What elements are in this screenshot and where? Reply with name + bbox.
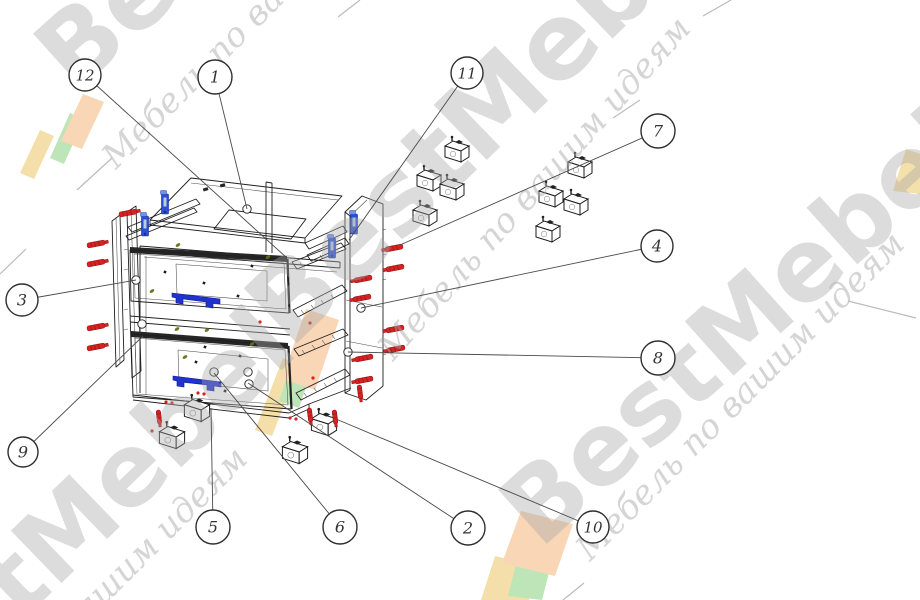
watermark-dash-line xyxy=(703,0,731,16)
assembly-diagram-page: BestMebelBestMebelBestMebelBestMebelМебе… xyxy=(0,0,920,600)
callout-number: 8 xyxy=(653,349,663,368)
screw-red xyxy=(87,342,109,351)
dowel-mark xyxy=(174,326,180,331)
callout-number: 12 xyxy=(75,67,94,85)
callout-number: 4 xyxy=(651,237,662,256)
screw-mark xyxy=(202,281,205,284)
callout-number: 10 xyxy=(583,519,603,537)
callout-number: 6 xyxy=(335,518,345,537)
watermark-dash-line xyxy=(77,158,112,190)
cam-lock-cube xyxy=(564,189,588,215)
watermark-dash-line xyxy=(338,0,360,17)
callout-number: 1 xyxy=(210,68,220,87)
callout-number: 5 xyxy=(208,518,218,537)
watermark-dash-line xyxy=(848,301,916,318)
screw-dot xyxy=(311,376,314,379)
screw-dot xyxy=(288,416,291,419)
screw-mark xyxy=(163,270,166,273)
watermark-layer: BestMebelBestMebelBestMebelBestMebelМебе… xyxy=(0,0,920,600)
callout-3: 3 xyxy=(6,280,136,316)
screw-red xyxy=(351,354,373,363)
screw-red xyxy=(87,322,109,331)
screw-red-vertical xyxy=(357,385,363,402)
callout-number: 9 xyxy=(18,443,28,462)
hinge-bracket-blue xyxy=(161,191,169,215)
dowel-mark xyxy=(175,242,181,247)
callout-number: 3 xyxy=(17,291,27,310)
watermark-dash-line xyxy=(0,249,26,274)
callout-number: 7 xyxy=(653,122,664,141)
leader-line-1 xyxy=(215,77,247,209)
logo-ribbon-yellow xyxy=(20,130,54,179)
callout-2: 2 xyxy=(248,383,485,545)
callout-number: 2 xyxy=(462,519,473,538)
foot-bracket-cube xyxy=(282,436,307,464)
pilot-hole xyxy=(138,320,146,328)
screw-red xyxy=(87,239,109,248)
dowel-mark xyxy=(149,288,155,293)
screw-red xyxy=(87,258,109,267)
watermark-dash-line xyxy=(563,583,584,600)
screw-dot xyxy=(294,417,297,420)
screw-red xyxy=(119,208,141,217)
assembly-diagram-canvas: BestMebelBestMebelBestMebelBestMebelМебе… xyxy=(0,0,920,600)
cam-lock-cube xyxy=(536,216,560,242)
screw-red xyxy=(351,376,373,385)
leader-line-3 xyxy=(22,280,136,300)
callout-number: 11 xyxy=(457,65,476,83)
hinge-bracket-blue xyxy=(141,213,149,237)
